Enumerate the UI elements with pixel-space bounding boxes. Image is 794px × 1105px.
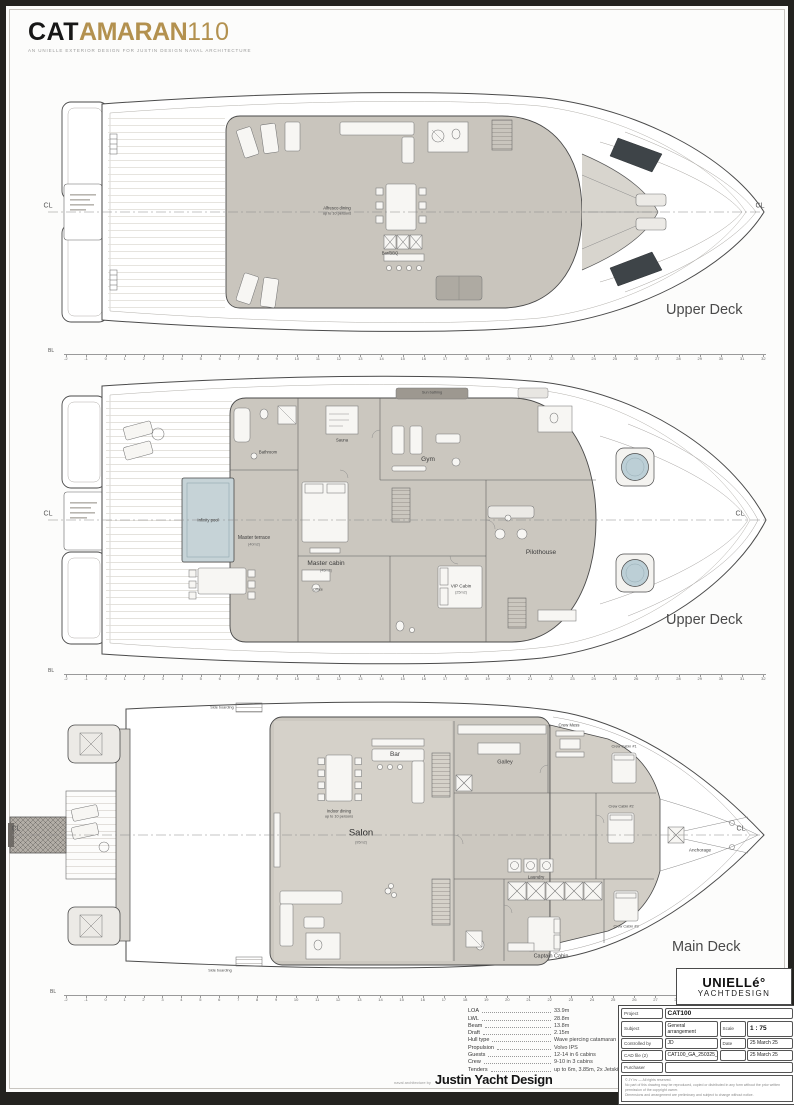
- room-label-laundry: Laundry: [528, 874, 545, 880]
- ruler-tick: 0: [105, 677, 107, 685]
- ruler-tick: 7: [238, 677, 240, 685]
- room-label-gym: Gym: [421, 456, 435, 464]
- ruler-tick: 9: [276, 677, 278, 685]
- titleblock-date-value-2: 25 March 25: [747, 1050, 793, 1061]
- titleblock-purchaser-value: [665, 1062, 794, 1073]
- ruler-tick: 16: [422, 677, 426, 685]
- deck-title-main: Main Deck: [672, 939, 741, 955]
- ruler-tick: 3: [162, 677, 164, 685]
- ruler-tick: 27: [655, 677, 659, 685]
- spec-leader-dots: [497, 1049, 551, 1050]
- ruler-tick: 12: [337, 677, 341, 685]
- titleblock-subject-label: Subject: [621, 1021, 663, 1037]
- logo-tagline: AN UNIELLE EXTERIOR DESIGN FOR JUSTIN DE…: [28, 48, 251, 53]
- room-label-crew-cabin-1: Crew Cabin #1: [611, 745, 636, 750]
- ruler-tick: 8: [256, 998, 258, 1006]
- room-label-crew-mess: Crew Mess: [559, 722, 580, 727]
- spec-row: Crew 9-10 in 3 cabins: [468, 1058, 642, 1065]
- ruler-tick: 2: [143, 357, 145, 365]
- ruler-tick: 30: [719, 677, 723, 685]
- drawing-sheet-page: { "header": { "logo_cat": "CAT", "logo_a…: [0, 0, 794, 1100]
- titleblock-project-value: CAT100: [665, 1008, 794, 1019]
- titleblock-scale-label: Scale: [720, 1021, 746, 1037]
- spec-label: Draft: [468, 1030, 480, 1036]
- centerline-label-left: CL: [44, 203, 53, 210]
- ruler-tick: 6: [219, 677, 221, 685]
- ruler-tick: 11: [316, 677, 320, 685]
- label-sun-bathing: Sun bathing: [422, 391, 442, 396]
- ruler-tick: 8: [257, 357, 259, 365]
- spec-label: Beam: [468, 1023, 482, 1029]
- owners-deck-plan: Sun bathing Bathroom Sauna Gym Infinity …: [40, 370, 770, 688]
- ruler-tick: 29: [698, 677, 702, 685]
- spec-leader-dots: [483, 1034, 551, 1035]
- spec-row: LOA 33.9m: [468, 1007, 642, 1014]
- spec-row: Propulsion Volvo IPS: [468, 1043, 642, 1050]
- ruler-tick: 31: [740, 677, 744, 685]
- spec-label: Crew: [468, 1059, 481, 1065]
- room-label-captain-cabin: Captain Cabin: [534, 954, 569, 961]
- titleblock-cadfile-value: CAT100_GA_250325_dwg: [665, 1050, 719, 1061]
- titleblock-date-spacer: [720, 1050, 746, 1061]
- ruler-tick: 23: [570, 677, 574, 685]
- drawing-sheet: CATAMARAN110 AN UNIELLE EXTERIOR DESIGN …: [6, 6, 788, 1092]
- spec-leader-dots: [492, 1041, 551, 1042]
- baseline-label: BL: [48, 348, 54, 354]
- ruler-tick: 5: [199, 998, 201, 1006]
- ruler-tick: 3: [162, 357, 164, 365]
- ruler-tick: 1: [123, 998, 125, 1006]
- technical-boxes: [508, 882, 602, 900]
- logo-amaran: AMARAN: [79, 18, 187, 47]
- label-anchorage: Anchorage: [689, 847, 711, 853]
- ruler-tick: 16: [421, 998, 425, 1006]
- ruler-tick: 14: [379, 677, 383, 685]
- ruler-tick: 19: [484, 998, 488, 1006]
- specifications-list: LOA 33.9m LWL 28.8m Beam 13.8m Draft 2.1…: [468, 1007, 642, 1073]
- ruler-tick: 0: [105, 357, 107, 365]
- ruler-tick: 0: [105, 998, 107, 1006]
- ruler-tick: 10: [295, 357, 299, 365]
- titleblock-project-label: Project: [621, 1008, 663, 1019]
- ruler-tick: 5: [200, 357, 202, 365]
- spec-row: LWL 28.8m: [468, 1014, 642, 1021]
- ruler-tick: 2: [143, 677, 145, 685]
- spec-row: Hull type Wave piercing catamaran: [468, 1036, 642, 1043]
- fine-print-line-2: No part of this drawing may be reproduce…: [625, 1083, 789, 1094]
- ruler-tick: 32: [761, 357, 765, 365]
- naval-architect-credit: naval architecture by Justin Yacht Desig…: [394, 1072, 553, 1087]
- ruler-tick: 21: [526, 998, 530, 1006]
- ruler-tick: 21: [528, 357, 532, 365]
- ruler-tick: 5: [200, 677, 202, 685]
- label-indoor-dining: Indoor dining: [327, 808, 351, 813]
- ruler-tick: 13: [358, 677, 362, 685]
- ruler-tick: 21: [528, 677, 532, 685]
- spec-label: LWL: [468, 1016, 479, 1022]
- owners-deck-plan-drawing: [40, 370, 770, 670]
- ruler-tick: 11: [315, 998, 319, 1006]
- fine-print-line-3: Dimensions and arrangement are prelimina…: [625, 1093, 789, 1098]
- jacuzzi-port: [616, 448, 654, 486]
- ruler-tick: 6: [219, 357, 221, 365]
- jacuzzi-starboard: [616, 554, 654, 592]
- crew-mess-table: [556, 731, 584, 757]
- spec-leader-dots: [488, 1056, 551, 1057]
- spec-leader-dots: [485, 1027, 551, 1028]
- ruler-tick: 15: [400, 677, 404, 685]
- spec-label: Propulsion: [468, 1045, 494, 1051]
- spec-label: Hull type: [468, 1037, 489, 1043]
- centerline-label-left: CL: [12, 826, 21, 833]
- titleblock-controlled-label: Controlled by: [621, 1038, 663, 1049]
- ruler-tick: 22: [547, 998, 551, 1006]
- ruler-tick: -1: [84, 357, 88, 365]
- ruler-tick: 32: [761, 677, 765, 685]
- ruler-tick: 24: [590, 998, 594, 1006]
- ruler-tick: 6: [218, 998, 220, 1006]
- spec-row: Beam 13.8m: [468, 1022, 642, 1029]
- ruler-tick: 17: [443, 677, 447, 685]
- logo-wordmark: CATAMARAN110: [28, 18, 251, 47]
- ruler-tick: -1: [84, 998, 88, 1006]
- bbq-grill-units: [384, 235, 422, 249]
- ruler-tick: 18: [464, 677, 468, 685]
- baseline-label: BL: [48, 668, 54, 674]
- room-label-pilothouse: Pilothouse: [526, 549, 556, 557]
- spec-leader-dots: [482, 1012, 551, 1013]
- room-label-master-cabin: Master cabin: [307, 560, 344, 568]
- room-label-crew-cabin-2: Crew Cabin #2: [608, 805, 633, 810]
- ruler-tick: -2: [64, 677, 68, 685]
- title-block-fine-print: © JY bv — All rights reserved. No part o…: [621, 1075, 793, 1102]
- ruler-tick: 3: [161, 998, 163, 1006]
- flybridge-plan-drawing: [40, 80, 770, 350]
- deck-title-flybridge: Upper Deck: [666, 302, 743, 318]
- logo-cat: CAT: [28, 18, 79, 47]
- ruler-tick: 12: [337, 357, 341, 365]
- ruler-tick: 25: [613, 677, 617, 685]
- spec-label: LOA: [468, 1008, 479, 1014]
- label-infinity-pool: Infinity pool: [197, 517, 218, 522]
- ruler-tick: 1: [124, 677, 126, 685]
- spec-leader-dots: [484, 1063, 551, 1064]
- ruler-tick: 30: [719, 357, 723, 365]
- station-ruler: -2-1012345678910111213141516171819202122…: [64, 354, 766, 365]
- spec-leader-dots: [482, 1020, 551, 1021]
- flybridge-plan: Alfresco dining up to 10 persons Bar/BBQ…: [40, 80, 770, 368]
- credit-name: Justin Yacht Design: [435, 1072, 553, 1087]
- deck-title-owners: Upper Deck: [666, 612, 743, 628]
- ruler-tick: 4: [180, 998, 182, 1006]
- room-label-sauna: Sauna: [336, 437, 348, 442]
- ruler-tick: 13: [357, 998, 361, 1006]
- ruler-tick: 22: [549, 677, 553, 685]
- logo-num: 110: [187, 18, 230, 47]
- spec-row: Draft 2.15m: [468, 1029, 642, 1036]
- ruler-tick: 24: [591, 677, 595, 685]
- ruler-tick: 17: [442, 998, 446, 1006]
- centerline-label-right: CL: [737, 826, 746, 833]
- centerline-label-right: CL: [756, 203, 765, 210]
- ruler-tick: 26: [634, 677, 638, 685]
- ruler-tick: 9: [275, 998, 277, 1006]
- main-superstructure: [270, 717, 660, 965]
- ruler-tick: 23: [570, 357, 574, 365]
- room-label-alfresco-capacity: up to 10 persons: [323, 212, 351, 217]
- titleblock-date-label: Date: [720, 1038, 746, 1049]
- brand-subtitle: YACHTDESIGN: [698, 990, 771, 998]
- titleblock-date-value-1: 25 March 25: [747, 1038, 793, 1049]
- title-block: Project CAT100 Subject General arrangeme…: [618, 1005, 794, 1105]
- ruler-tick: 27: [655, 357, 659, 365]
- unielle-yachtdesign-logo: UNIELLé° YACHTDESIGN: [676, 968, 792, 1005]
- ruler-tick: 15: [399, 998, 403, 1006]
- ruler-tick: 20: [507, 677, 511, 685]
- room-label-salon: Salon: [349, 827, 373, 838]
- ruler-tick: 2: [142, 998, 144, 1006]
- ruler-tick: 16: [422, 357, 426, 365]
- ruler-tick: 1: [124, 357, 126, 365]
- ruler-tick: 4: [181, 357, 183, 365]
- room-area-vip-cabin: (25m2): [455, 591, 467, 596]
- ruler-tick: 14: [379, 357, 383, 365]
- crew-cabin1-bed: [612, 753, 636, 783]
- ruler-tick: 26: [634, 357, 638, 365]
- ruler-tick: 25: [611, 998, 615, 1006]
- ruler-tick: 25: [613, 357, 617, 365]
- ruler-tick: 19: [485, 677, 489, 685]
- ruler-tick: 24: [591, 357, 595, 365]
- credit-prefix: naval architecture by: [394, 1080, 431, 1085]
- ruler-tick: 10: [294, 998, 298, 1006]
- room-label-bathroom: Bathroom: [259, 449, 277, 454]
- ruler-tick: 9: [276, 357, 278, 365]
- ruler-tick: -1: [84, 677, 88, 685]
- label-indoor-dining-capacity: up to 10 persons: [325, 815, 353, 820]
- ruler-tick: 23: [569, 998, 573, 1006]
- room-area-master-terrace: (40m2): [248, 543, 260, 548]
- room-label-vip-cabin: VIP Cabin: [451, 583, 472, 589]
- ruler-tick: 7: [238, 357, 240, 365]
- ruler-tick: -2: [64, 998, 68, 1006]
- ruler-tick: 29: [698, 357, 702, 365]
- room-label-alfresco-dining: Alfresco dining: [323, 205, 350, 210]
- room-label-galley: Galley: [497, 760, 513, 767]
- main-deck-plan-drawing: [8, 695, 786, 995]
- crew-cabin3-bed: [614, 891, 638, 921]
- catamaran110-logo: CATAMARAN110 AN UNIELLE EXTERIOR DESIGN …: [28, 18, 251, 53]
- ruler-tick: 4: [181, 677, 183, 685]
- ruler-tick: 31: [740, 357, 744, 365]
- ruler-tick: 28: [676, 677, 680, 685]
- main-deck-plan: Side boarding Side boarding Indoor dinin…: [8, 695, 786, 1011]
- centerline-label-right: CL: [736, 511, 745, 518]
- crew-cabin2-bed: [608, 813, 634, 843]
- baseline-label: BL: [50, 989, 56, 995]
- room-label-bar-bbq: Bar/BBQ: [382, 250, 399, 255]
- room-label-bar: Bar: [390, 751, 400, 759]
- spec-label: Guests: [468, 1052, 485, 1058]
- ruler-tick: 19: [485, 357, 489, 365]
- ruler-tick: 13: [358, 357, 362, 365]
- ruler-tick: 18: [463, 998, 467, 1006]
- ruler-tick: 14: [378, 998, 382, 1006]
- ruler-tick: 15: [400, 357, 404, 365]
- ruler-tick: 22: [549, 357, 553, 365]
- titleblock-subject-value: General arrangement: [665, 1021, 719, 1037]
- brand-name: UNIELLé°: [702, 976, 765, 989]
- titleblock-purchaser-label: Purchaser: [621, 1062, 663, 1073]
- room-label-master-terrace: Master terrace: [238, 535, 270, 541]
- centerline-label-left: CL: [44, 511, 53, 518]
- room-area-master-cabin: (45m2): [320, 569, 332, 574]
- laundry-machines: [508, 859, 553, 872]
- spec-row: Guests 12-14 in 6 cabins: [468, 1051, 642, 1058]
- ruler-tick: 20: [507, 357, 511, 365]
- station-ruler: -2-1012345678910111213141516171819202122…: [64, 674, 766, 685]
- ruler-tick: 10: [295, 677, 299, 685]
- titleblock-cadfile-label: CAD file (2): [621, 1050, 663, 1061]
- ruler-tick: 28: [676, 357, 680, 365]
- ruler-tick: 18: [464, 357, 468, 365]
- ruler-tick: 17: [443, 357, 447, 365]
- label-side-boarding-bottom: Side boarding: [208, 969, 231, 974]
- ruler-tick: 7: [237, 998, 239, 1006]
- ruler-tick: 11: [316, 357, 320, 365]
- room-label-office: Office: [313, 588, 323, 593]
- label-side-boarding-top: Side boarding: [210, 706, 233, 711]
- ruler-tick: 8: [257, 677, 259, 685]
- ruler-tick: 20: [505, 998, 509, 1006]
- titleblock-scale-value: 1 : 75: [747, 1021, 793, 1037]
- ruler-tick: -2: [64, 357, 68, 365]
- room-area-salon: (95m2): [355, 841, 367, 846]
- title-block-table: Project CAT100 Subject General arrangeme…: [621, 1008, 793, 1073]
- ruler-tick: 12: [336, 998, 340, 1006]
- titleblock-controlled-value: JD: [665, 1038, 719, 1049]
- room-label-crew-cabin-3: Crew Cabin #3: [613, 925, 638, 930]
